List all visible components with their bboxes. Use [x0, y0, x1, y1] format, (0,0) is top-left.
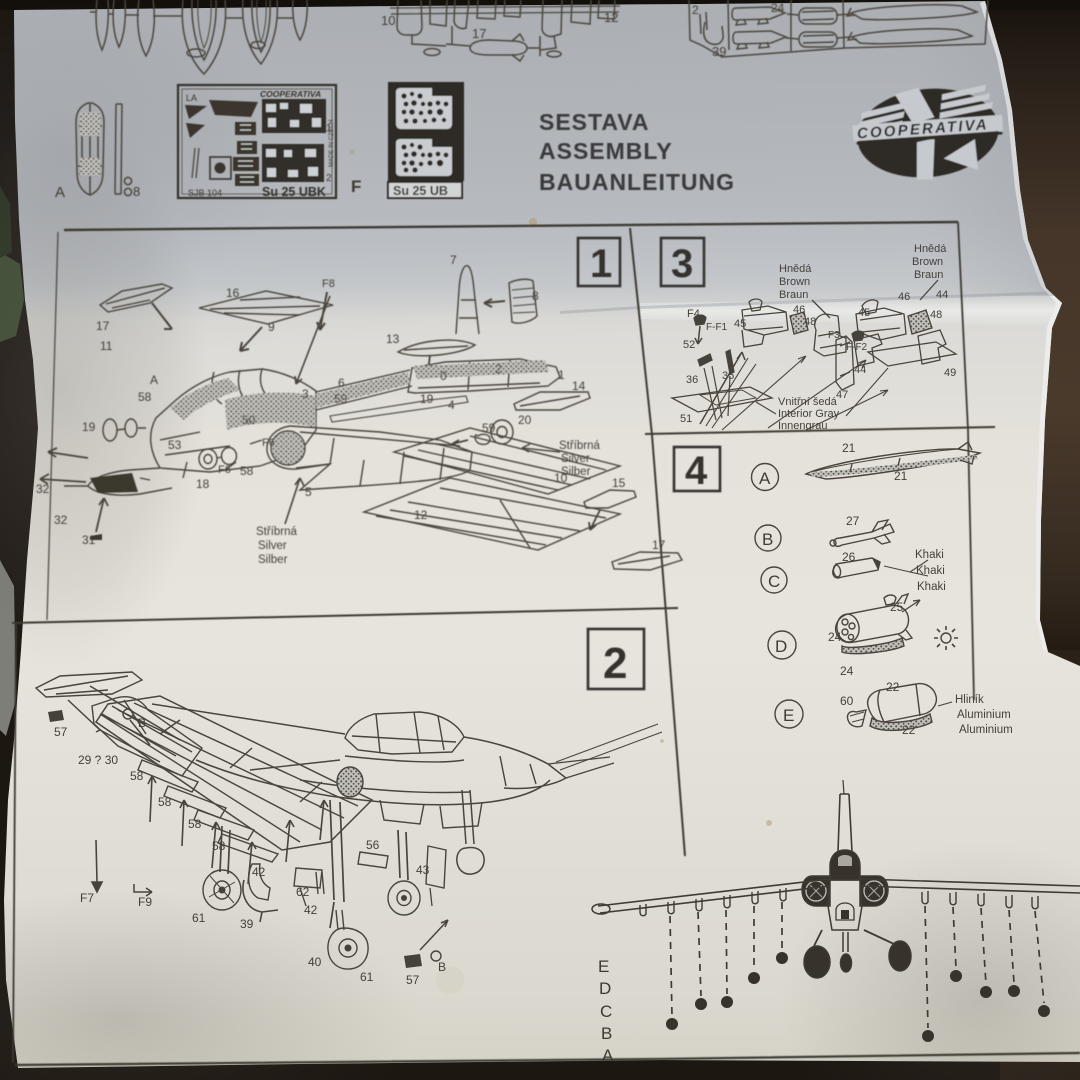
- svg-text:29 ? 30: 29 ? 30: [78, 753, 118, 767]
- svg-text:48: 48: [930, 309, 942, 321]
- svg-text:F6: F6: [262, 437, 275, 449]
- svg-text:16: 16: [226, 286, 240, 300]
- svg-text:47: 47: [836, 389, 848, 401]
- svg-text:21: 21: [842, 441, 856, 455]
- svg-text:11: 11: [100, 339, 113, 353]
- svg-text:Hliník: Hliník: [955, 694, 984, 706]
- svg-text:35: 35: [722, 370, 734, 382]
- svg-text:2: 2: [495, 362, 502, 376]
- svg-text:8: 8: [133, 184, 140, 199]
- svg-text:58: 58: [188, 817, 202, 831]
- svg-text:F9: F9: [138, 895, 152, 909]
- svg-text:Vnitřní šedá: Vnitřní šedá: [778, 396, 838, 408]
- svg-text:62: 62: [296, 885, 310, 899]
- svg-text:COOPERATIVA: COOPERATIVA: [260, 89, 321, 99]
- svg-text:57: 57: [406, 973, 420, 987]
- svg-text:22: 22: [886, 680, 900, 694]
- svg-text:Interior Gray: Interior Gray: [778, 408, 840, 420]
- svg-text:Hnědá: Hnědá: [779, 263, 812, 275]
- svg-text:10: 10: [381, 13, 395, 28]
- svg-text:17: 17: [652, 538, 666, 552]
- svg-text:SJB 104: SJB 104: [188, 188, 222, 198]
- svg-text:31: 31: [82, 533, 96, 547]
- svg-text:45: 45: [734, 318, 746, 330]
- svg-text:F7: F7: [80, 891, 94, 905]
- svg-text:4: 4: [448, 398, 455, 412]
- svg-text:39: 39: [712, 44, 726, 59]
- svg-text:1: 1: [558, 368, 565, 382]
- svg-text:LA: LA: [186, 93, 197, 103]
- svg-text:F-F2: F-F2: [846, 342, 868, 353]
- svg-text:51: 51: [680, 413, 692, 425]
- svg-text:Silber: Silber: [258, 554, 288, 566]
- svg-text:2: 2: [326, 173, 332, 184]
- svg-text:A: A: [55, 184, 65, 201]
- svg-text:58: 58: [130, 769, 144, 783]
- svg-text:Khaki: Khaki: [915, 549, 944, 561]
- svg-text:59: 59: [482, 421, 496, 435]
- svg-text:Su 25 UB: Su 25 UB: [393, 184, 448, 198]
- svg-text:53: 53: [168, 438, 182, 452]
- svg-text:20: 20: [518, 413, 532, 427]
- svg-text:46: 46: [898, 291, 910, 303]
- svg-text:B: B: [138, 716, 146, 730]
- svg-text:2: 2: [603, 639, 627, 688]
- svg-text:44: 44: [854, 364, 866, 376]
- svg-text:25: 25: [890, 600, 904, 614]
- svg-text:58: 58: [138, 390, 152, 404]
- svg-text:58: 58: [240, 464, 254, 478]
- svg-text:Innengrau: Innengrau: [778, 420, 828, 432]
- svg-text:ASSEMBLY: ASSEMBLY: [539, 138, 673, 164]
- svg-text:17: 17: [96, 319, 110, 333]
- svg-text:MADE IN CZECH: MADE IN CZECH: [329, 120, 335, 167]
- svg-text:Silver: Silver: [561, 453, 590, 465]
- svg-text:50: 50: [242, 413, 256, 427]
- svg-text:32: 32: [36, 482, 50, 496]
- svg-text:36: 36: [686, 374, 698, 386]
- svg-text:Aluminium: Aluminium: [959, 724, 1013, 736]
- svg-text:39: 39: [240, 917, 254, 931]
- svg-text:5: 5: [305, 485, 312, 499]
- svg-text:49: 49: [944, 367, 956, 379]
- svg-text:46: 46: [793, 304, 805, 316]
- svg-text:Brown: Brown: [779, 276, 810, 288]
- svg-text:59: 59: [334, 392, 348, 406]
- svg-text:27: 27: [846, 514, 860, 528]
- svg-text:F8: F8: [322, 278, 335, 290]
- svg-text:A: A: [759, 469, 771, 488]
- svg-text:F6: F6: [218, 464, 231, 476]
- svg-text:12: 12: [604, 10, 618, 25]
- svg-text:F: F: [351, 177, 361, 196]
- svg-text:Khaki: Khaki: [916, 565, 945, 577]
- svg-text:Aluminium: Aluminium: [957, 709, 1011, 721]
- svg-text:D: D: [775, 637, 787, 656]
- svg-text:58: 58: [158, 795, 172, 809]
- svg-text:61: 61: [360, 970, 374, 984]
- svg-text:52: 52: [683, 339, 695, 351]
- svg-text:Stříbrná: Stříbrná: [256, 526, 298, 538]
- svg-text:3: 3: [671, 242, 693, 286]
- svg-text:E: E: [783, 706, 794, 725]
- svg-text:40: 40: [308, 955, 322, 969]
- svg-text:B: B: [762, 530, 773, 549]
- svg-text:Hnědá: Hnědá: [914, 243, 947, 255]
- svg-text:BAUANLEITUNG: BAUANLEITUNG: [539, 169, 735, 195]
- svg-text:58: 58: [212, 839, 226, 853]
- svg-text:24: 24: [771, 1, 785, 15]
- svg-text:SESTAVA: SESTAVA: [539, 109, 650, 135]
- svg-text:56: 56: [366, 838, 380, 852]
- svg-text:9: 9: [268, 320, 275, 334]
- svg-text:A: A: [602, 1046, 614, 1065]
- svg-text:E: E: [598, 957, 609, 976]
- svg-text:15: 15: [612, 476, 626, 490]
- svg-text:0: 0: [440, 369, 447, 383]
- svg-text:24: 24: [840, 664, 854, 678]
- svg-text:Braun: Braun: [779, 289, 808, 301]
- svg-text:19: 19: [420, 392, 434, 406]
- svg-text:D: D: [599, 979, 611, 998]
- svg-text:32: 32: [54, 513, 68, 527]
- svg-text:Silver: Silver: [258, 540, 287, 552]
- svg-text:F4: F4: [687, 308, 700, 320]
- svg-text:Khaki: Khaki: [917, 581, 946, 593]
- svg-text:17: 17: [472, 26, 486, 41]
- svg-text:45: 45: [858, 307, 870, 319]
- svg-text:60: 60: [840, 694, 854, 708]
- svg-text:18: 18: [196, 477, 210, 491]
- svg-text:C: C: [600, 1002, 612, 1021]
- svg-text:1: 1: [590, 242, 612, 286]
- svg-text:24: 24: [828, 630, 842, 644]
- svg-text:21: 21: [894, 469, 908, 483]
- svg-text:2: 2: [692, 3, 699, 17]
- svg-text:12: 12: [414, 508, 428, 522]
- svg-text:48: 48: [804, 316, 816, 328]
- svg-text:44: 44: [936, 289, 948, 301]
- svg-text:Brown: Brown: [912, 256, 943, 268]
- svg-text:61: 61: [192, 911, 206, 925]
- svg-text:13: 13: [386, 332, 400, 346]
- svg-text:Su 25 UBK: Su 25 UBK: [262, 185, 326, 199]
- svg-text:F-F1: F-F1: [706, 322, 728, 333]
- svg-text:22: 22: [902, 723, 916, 737]
- svg-text:A: A: [150, 373, 158, 387]
- svg-text:F3: F3: [828, 330, 840, 341]
- svg-text:6: 6: [338, 376, 345, 390]
- svg-text:C: C: [768, 572, 780, 591]
- svg-text:Stříbrná: Stříbrná: [559, 440, 601, 452]
- svg-text:57: 57: [54, 725, 68, 739]
- svg-text:B: B: [438, 960, 446, 974]
- svg-text:43: 43: [416, 863, 430, 877]
- svg-text:42: 42: [304, 903, 318, 917]
- svg-text:3: 3: [302, 387, 309, 401]
- svg-text:42: 42: [252, 865, 266, 879]
- svg-text:7: 7: [450, 253, 457, 267]
- svg-text:14: 14: [572, 379, 586, 393]
- svg-text:26: 26: [842, 550, 856, 564]
- svg-text:8: 8: [532, 289, 539, 303]
- svg-text:Silber: Silber: [561, 466, 591, 478]
- svg-text:19: 19: [82, 420, 96, 434]
- svg-text:Braun: Braun: [914, 269, 943, 281]
- svg-text:B: B: [601, 1024, 612, 1043]
- svg-text:4: 4: [685, 449, 708, 493]
